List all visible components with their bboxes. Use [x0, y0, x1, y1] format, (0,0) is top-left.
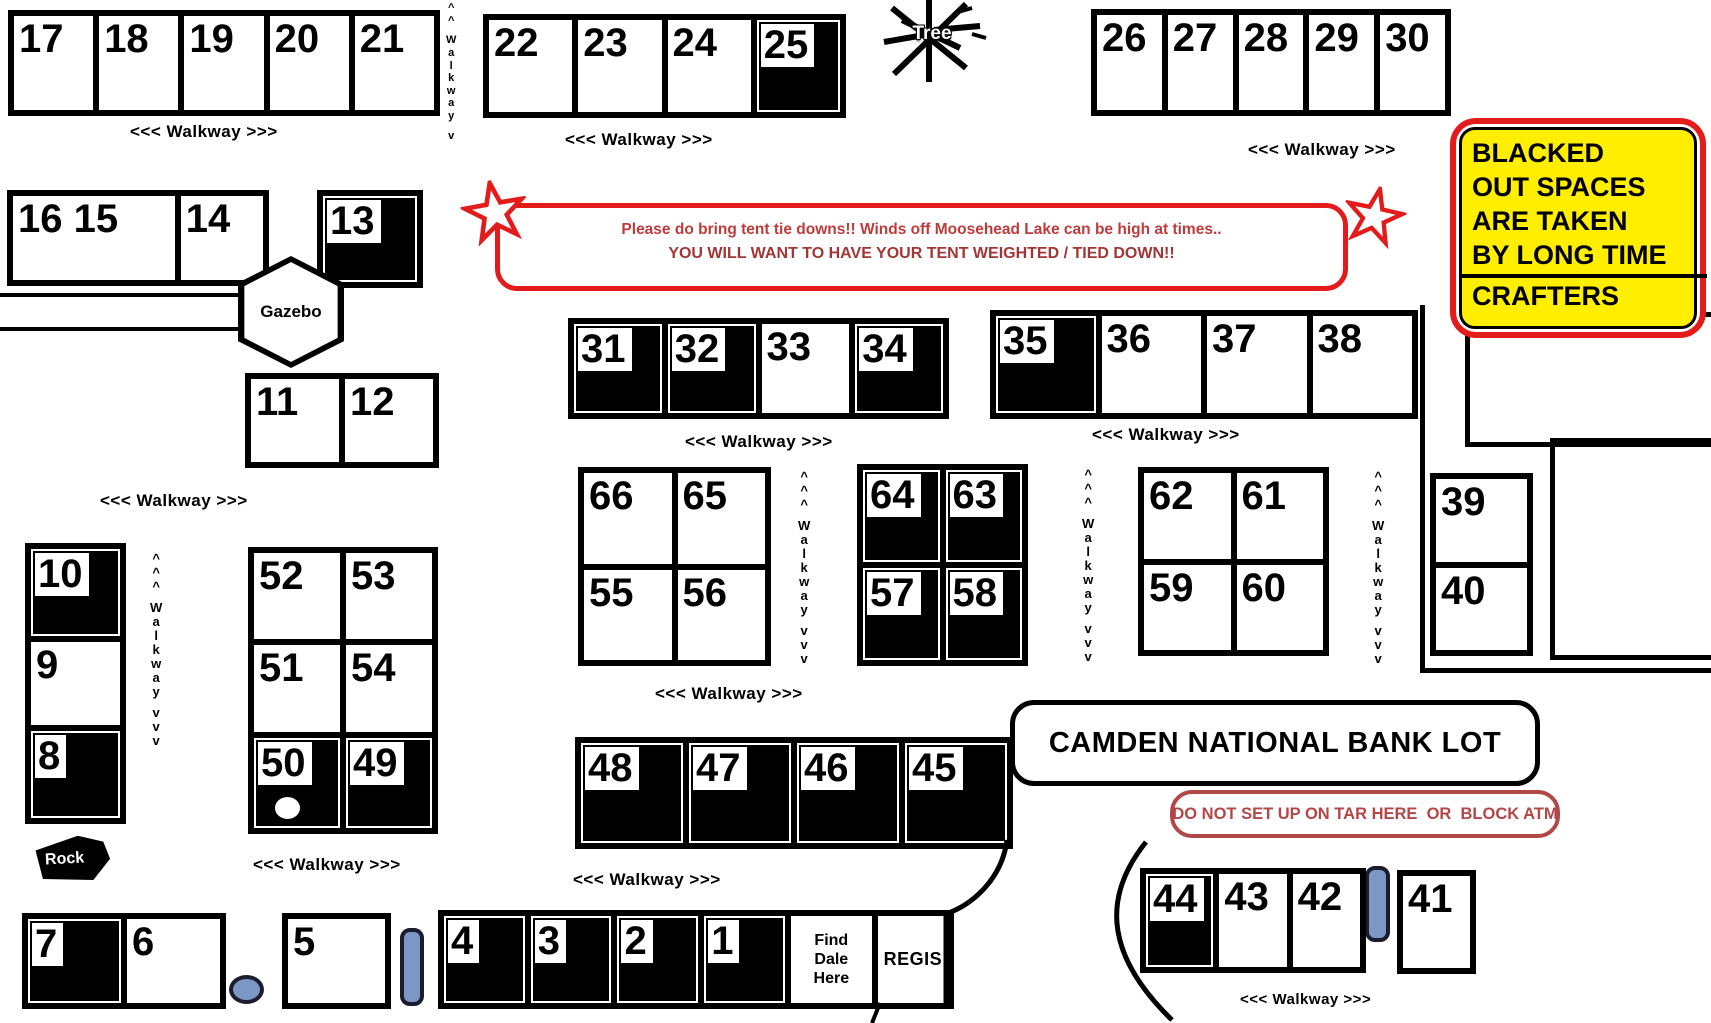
blue-pole-marker	[1365, 866, 1390, 942]
booth-22: 22	[486, 17, 575, 115]
booths-31-34: 31323334	[568, 318, 949, 419]
booth-number: 12	[350, 382, 395, 422]
booth-45: 45	[902, 740, 1010, 846]
booth-5: 5	[285, 916, 388, 1006]
booths-48-45: 48474645	[575, 737, 1013, 849]
booth-19: 19	[181, 13, 266, 113]
booth-number: 54	[351, 648, 396, 688]
booth-number: 31	[578, 328, 632, 371]
booth-7: 7	[25, 916, 124, 1006]
booth-number: 35	[1000, 320, 1054, 363]
booth-16-15: 16 15	[10, 193, 178, 283]
booth-number: 34	[859, 328, 913, 371]
booths-66-65-55-56: 66655556	[578, 467, 771, 666]
booth-29: 29	[1306, 12, 1377, 113]
walkway-letter: a	[448, 97, 454, 110]
booths-4-1-registration: 4321FindDaleHereREGIS	[438, 910, 954, 1009]
booths-52-53-51-54-50-49: 525351545049	[248, 547, 438, 834]
tent-tie-down-notice: Please do bring tent tie downs!! Winds o…	[495, 203, 1348, 291]
walkway-letter: a	[1085, 531, 1092, 545]
walkway-letter: W	[1372, 519, 1384, 533]
booth-number: 5	[293, 922, 315, 962]
booth-49: 49	[343, 735, 435, 831]
booths-64-63-57-58: 64635758	[857, 464, 1028, 666]
booth-35: 35	[993, 313, 1099, 416]
walkway-letter: ^	[1084, 496, 1092, 510]
booths-22-25: 22232425	[483, 14, 846, 118]
booth-9: 9	[28, 639, 123, 728]
booth-number: 27	[1173, 18, 1218, 58]
booth-30: 30	[1377, 12, 1448, 113]
booth-number: 65	[683, 476, 728, 516]
tent-notice-line-2: YOU WILL WANT TO HAVE YOUR TENT WEIGHTED…	[500, 245, 1343, 263]
walkway-letter: w	[151, 657, 161, 671]
tree-label: Tree	[912, 23, 951, 45]
booth-number: 36	[1107, 319, 1152, 359]
booth-number: 25	[761, 24, 815, 67]
booth-55: 55	[581, 567, 675, 664]
walkway-letter: ^	[1374, 470, 1382, 484]
booth-58: 58	[943, 565, 1026, 663]
booth-number: 23	[583, 23, 628, 63]
walkway-letter: v	[153, 720, 160, 734]
booth-number: 51	[259, 648, 304, 688]
blacked-out-spaces-notice: BLACKED OUT SPACES ARE TAKEN BY LONG TIM…	[1450, 118, 1706, 338]
booth-number: 48	[585, 747, 639, 790]
walkway-label: <<< Walkway >>>	[1248, 140, 1396, 160]
walkway-letter: l	[1376, 547, 1380, 561]
path-line-bottom	[0, 327, 250, 331]
walkway-letter: W	[1082, 517, 1094, 531]
walkway-letter: v	[1085, 636, 1092, 650]
booth-number: 62	[1149, 476, 1194, 516]
walkway-letter: v	[1375, 652, 1382, 666]
walkway-letter: v	[1085, 622, 1092, 636]
walkway-letter: v	[153, 734, 160, 748]
booth-34: 34	[852, 321, 946, 416]
tent-notice-line-1: Please do bring tent tie downs!! Winds o…	[500, 221, 1343, 239]
walkway-letter: ^	[448, 2, 454, 15]
notice-line: BY LONG TIME	[1472, 238, 1694, 272]
booths-62-61-59-60: 62615960	[1138, 467, 1329, 656]
walkway-letter: v	[1085, 650, 1092, 664]
booth-number: 20	[275, 19, 320, 59]
booth-42: 42	[1290, 871, 1363, 970]
booth-number: 33	[767, 327, 812, 367]
booth-number: 63	[950, 474, 1004, 517]
booth-18: 18	[96, 13, 181, 113]
walkway-letter: y	[153, 685, 160, 699]
booths-17-21: 1718192021	[8, 10, 440, 116]
notice-line: OUT SPACES	[1472, 170, 1694, 204]
booth-number: 28	[1244, 18, 1289, 58]
booth-number: 32	[672, 328, 726, 371]
booth-41: 41	[1400, 873, 1473, 971]
camden-national-bank-lot-label: CAMDEN NATIONAL BANK LOT	[1010, 700, 1540, 786]
booth-number: 61	[1242, 476, 1287, 516]
booth-3: 3	[528, 913, 615, 1006]
walkway-letter: y	[801, 603, 808, 617]
walkway-letter: v	[1375, 638, 1382, 652]
walkway-label: <<< Walkway >>>	[573, 870, 721, 890]
booth-44: 44	[1143, 871, 1216, 970]
booth-number: 60	[1242, 568, 1287, 608]
booths-11-12: 1112	[245, 373, 439, 468]
find-dale-here-booth: FindDaleHere	[788, 913, 875, 1006]
booth-number: 21	[360, 19, 405, 59]
booth-number: 11	[256, 382, 298, 422]
walkway-letter: l	[154, 629, 158, 643]
gazebo: Gazebo	[238, 256, 344, 368]
walkway-label: <<< Walkway >>>	[1240, 991, 1371, 1008]
booth-1: 1	[701, 913, 788, 1006]
booth-26: 26	[1094, 12, 1165, 113]
blue-pole-marker	[400, 928, 424, 1006]
booth-43: 43	[1216, 871, 1289, 970]
booth-28: 28	[1236, 12, 1307, 113]
walkway-label: <<< Walkway >>>	[1092, 425, 1240, 445]
booth-number: 4	[448, 920, 479, 963]
walkway-letter: k	[1085, 559, 1092, 573]
walkway-letter: a	[153, 671, 160, 685]
booth-20: 20	[267, 13, 352, 113]
booth-24: 24	[665, 17, 754, 115]
walkway-letter: ^	[1084, 468, 1092, 482]
booth-38: 38	[1310, 313, 1416, 416]
rock-marker: Rock	[35, 834, 111, 883]
walkway-label-vertical: ^^^Walkwayvvv	[1082, 468, 1094, 664]
walkway-letter: ^	[1084, 482, 1092, 496]
walkway-letter: y	[1375, 603, 1382, 617]
walkway-letter: v	[1375, 624, 1382, 638]
booth-number: 1	[708, 920, 739, 963]
booth-number: 57	[867, 572, 921, 615]
booth-number: 9	[36, 645, 58, 685]
walkway-letter: v	[153, 706, 160, 720]
booth-number: 38	[1318, 319, 1363, 359]
walkway-letter: w	[799, 575, 809, 589]
booth-number: 55	[589, 573, 634, 613]
booths-16-15-14: 16 1514	[7, 190, 269, 286]
star-icon	[457, 175, 533, 251]
booth-17: 17	[11, 13, 96, 113]
booth-10: 10	[28, 546, 123, 639]
notice-line: ARE TAKEN	[1472, 204, 1694, 238]
booth-5: 5	[282, 913, 391, 1009]
booth-number: 49	[350, 742, 404, 785]
walkway-letter: v	[801, 638, 808, 652]
walkway-letter: y	[448, 110, 454, 123]
booth-number: 18	[104, 19, 149, 59]
walkway-letter: k	[448, 72, 454, 85]
walkway-label: <<< Walkway >>>	[253, 855, 401, 875]
booth-number: 10	[35, 553, 89, 596]
walkway-label: <<< Walkway >>>	[130, 122, 278, 142]
gazebo-outline: Gazebo	[238, 256, 344, 368]
booth-number: 8	[35, 735, 66, 778]
booth-37: 37	[1204, 313, 1310, 416]
booth-64: 64	[860, 467, 943, 565]
booth-32: 32	[665, 321, 759, 416]
booth-number: 29	[1314, 18, 1359, 58]
booth-number: 26	[1102, 18, 1147, 58]
walkway-label-vertical: ^^Walkwayv	[446, 2, 456, 142]
walkway-letter: a	[801, 589, 808, 603]
walkway-letter: W	[150, 601, 162, 615]
walkway-letter: a	[1375, 589, 1382, 603]
booth-23: 23	[575, 17, 664, 115]
walkway-label-vertical: ^^^Walkwayvvv	[798, 470, 810, 666]
booth-number: 59	[1149, 568, 1194, 608]
gazebo-label: Gazebo	[244, 262, 337, 362]
walkway-letter: ^	[800, 498, 808, 512]
booth-54: 54	[343, 642, 435, 734]
walkway-letter: k	[801, 561, 808, 575]
walkway-letter: ^	[152, 566, 160, 580]
booth-25: 25	[754, 17, 843, 115]
notice-line: CRAFTERS	[1472, 279, 1694, 313]
booth-number: 22	[494, 23, 539, 63]
walkway-letter: w	[1083, 573, 1093, 587]
walkway-letter: l	[450, 60, 453, 73]
booth-number: 45	[909, 747, 963, 790]
booth-number: 43	[1224, 877, 1269, 917]
booth-66: 66	[581, 470, 675, 567]
walkway-letter: l	[1086, 545, 1090, 559]
walkway-letter: w	[447, 85, 456, 98]
booth-59: 59	[1141, 562, 1234, 654]
blacked-out-spaces-notice-text: BLACKED OUT SPACES ARE TAKEN BY LONG TIM…	[1459, 127, 1697, 329]
lot-outline-lower	[1550, 438, 1711, 660]
rock-label: Rock	[45, 849, 85, 869]
star-icon	[1337, 180, 1411, 254]
walkway-label: <<< Walkway >>>	[100, 491, 248, 511]
walkway-label: <<< Walkway >>>	[655, 684, 803, 704]
tree-rays	[872, 0, 992, 95]
booths-10-9-8: 1098	[25, 543, 126, 824]
booth-number: 16 15	[18, 199, 118, 239]
walkway-letter: W	[798, 519, 810, 533]
booth-12: 12	[342, 376, 436, 465]
walkway-letter: ^	[448, 15, 454, 28]
walkway-letter: k	[153, 643, 160, 657]
booth-number: 47	[693, 747, 747, 790]
booth-number: 14	[186, 199, 231, 239]
booth-number: 66	[589, 476, 634, 516]
booth-number: 44	[1150, 878, 1204, 921]
booth-50: 50	[251, 735, 343, 831]
booth-number: 3	[535, 920, 566, 963]
booth-number: 30	[1385, 18, 1430, 58]
booth-number: 41	[1408, 879, 1453, 919]
craft-fair-booth-map: Gazebo Tree Rock 1718192021 22232	[0, 0, 1711, 1023]
booth-number: 50	[258, 742, 312, 785]
walkway-letter: ^	[152, 580, 160, 594]
walkway-letter: v	[448, 130, 454, 143]
booth-36: 36	[1099, 313, 1205, 416]
booth-2: 2	[614, 913, 701, 1006]
booth-41: 41	[1397, 870, 1476, 974]
booth-48: 48	[578, 740, 686, 846]
walkway-letter: a	[153, 615, 160, 629]
booth-4: 4	[441, 913, 528, 1006]
walkway-label: <<< Walkway >>>	[685, 432, 833, 452]
booth-number: 46	[801, 747, 855, 790]
walkway-letter: a	[448, 47, 454, 60]
booths-26-30: 2627282930	[1091, 9, 1451, 116]
walkway-letter: v	[801, 652, 808, 666]
booth-text-line: Dale	[814, 950, 848, 969]
booth-8: 8	[28, 728, 123, 821]
booth-number: 42	[1298, 877, 1343, 917]
booth-number: 53	[351, 556, 396, 596]
booth-61: 61	[1234, 470, 1327, 562]
walkway-letter: ^	[1374, 484, 1382, 498]
walkway-letter: ^	[1374, 498, 1382, 512]
booth-number: 64	[867, 474, 921, 517]
notice-line: BLACKED	[1472, 136, 1694, 170]
booth-number: 37	[1212, 319, 1257, 359]
walkway-letter: l	[802, 547, 806, 561]
booth-46: 46	[794, 740, 902, 846]
booth-27: 27	[1165, 12, 1236, 113]
booth-56: 56	[675, 567, 769, 664]
booth-number: 7	[32, 923, 63, 966]
divider-line	[1459, 274, 1707, 278]
booth-62: 62	[1141, 470, 1234, 562]
walkway-letter: y	[1085, 601, 1092, 615]
path-line-top	[0, 293, 250, 297]
atm-warning-notice: DO NOT SET UP ON TAR HERE OR BLOCK ATM	[1170, 790, 1560, 838]
booth-60: 60	[1234, 562, 1327, 654]
booth-6: 6	[124, 916, 223, 1006]
booths-44-43-42: 444342	[1140, 868, 1366, 973]
walkway-letter: ^	[800, 470, 808, 484]
booth-51: 51	[251, 642, 343, 734]
blue-dot-marker	[229, 975, 264, 1004]
walkway-letter: w	[1373, 575, 1383, 589]
booth-text-line: Here	[814, 969, 850, 988]
booth-53: 53	[343, 550, 435, 642]
registration-booth: REGIS	[875, 913, 951, 1006]
tree-icon: Tree	[872, 0, 992, 95]
booths-35-38: 35363738	[990, 310, 1418, 419]
booth-57: 57	[860, 565, 943, 663]
booth-number: 56	[683, 573, 728, 613]
booth-47: 47	[686, 740, 794, 846]
walkway-label: <<< Walkway >>>	[565, 130, 713, 150]
booth-11: 11	[248, 376, 342, 465]
booth-number: 13	[327, 200, 381, 243]
booth-63: 63	[943, 467, 1026, 565]
walkway-label-vertical: ^^^Walkwayvvv	[150, 552, 162, 748]
walkway-letter: v	[801, 624, 808, 638]
booth-number: 24	[673, 23, 718, 63]
booth-52: 52	[251, 550, 343, 642]
booth-33: 33	[759, 321, 853, 416]
walkway-letter: k	[1375, 561, 1382, 575]
booth-number: 52	[259, 556, 304, 596]
booth-number: 2	[621, 920, 652, 963]
booth-number: 6	[132, 922, 154, 962]
booth-number: 17	[19, 19, 64, 59]
walkway-letter: a	[1375, 533, 1382, 547]
walkway-letter: a	[1085, 587, 1092, 601]
booths-7-6: 76	[22, 913, 226, 1009]
booth-text-line: Find	[814, 931, 848, 950]
booth-21: 21	[352, 13, 437, 113]
walkway-label-vertical: ^^^Walkwayvvv	[1372, 470, 1384, 666]
walkway-letter: ^	[800, 484, 808, 498]
booth-number: 58	[950, 572, 1004, 615]
booth-31: 31	[571, 321, 665, 416]
circle-marker	[275, 797, 300, 819]
booth-65: 65	[675, 470, 769, 567]
walkway-letter: W	[446, 34, 456, 47]
booth-number: 19	[189, 19, 234, 59]
walkway-letter: a	[801, 533, 808, 547]
walkway-letter: ^	[152, 552, 160, 566]
